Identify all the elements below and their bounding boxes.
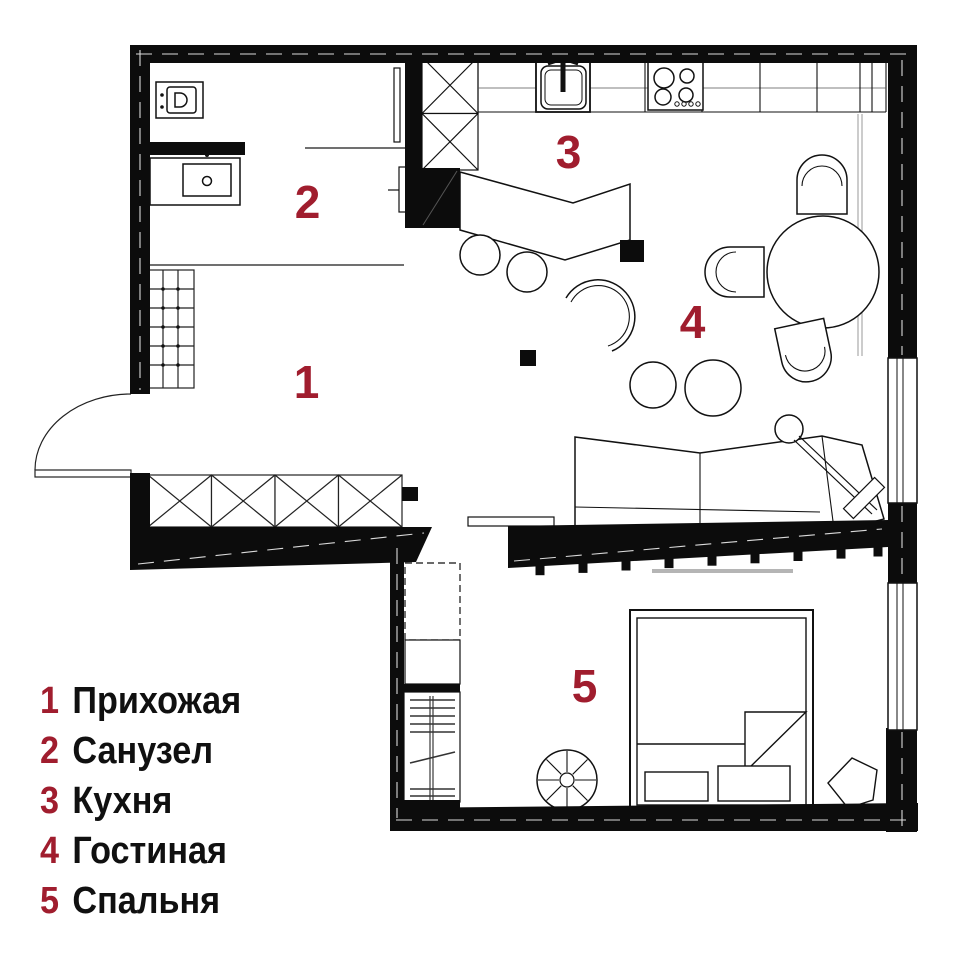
pouf xyxy=(685,360,741,416)
room-label-2: 2 xyxy=(295,176,320,228)
legend-item: 2 Санузел xyxy=(40,730,241,780)
wall-bedroom-bottom xyxy=(390,803,918,831)
legend-number: 3 xyxy=(40,780,72,823)
legend-item: 4 Гостиная xyxy=(40,830,241,880)
entrance-door xyxy=(35,394,131,477)
legend-item: 5 Спальня xyxy=(40,880,241,930)
dining-chair xyxy=(705,247,764,297)
dining-chair xyxy=(797,155,847,214)
room-label-4: 4 xyxy=(680,296,706,348)
lounge-chair xyxy=(566,280,635,351)
toilet xyxy=(156,82,203,118)
closet-separator xyxy=(402,684,460,692)
hall-wardrobe xyxy=(148,475,402,527)
legend-item: 3 Кухня xyxy=(40,780,241,830)
wall-bath-kitchen xyxy=(405,45,422,228)
sofa xyxy=(575,436,884,530)
pentagon-pouf xyxy=(828,758,877,808)
legend-number: 5 xyxy=(40,880,72,923)
legend-label: Гостиная xyxy=(72,830,227,873)
dining-chair xyxy=(775,318,836,386)
bar-stool xyxy=(507,252,547,292)
floor-plan-page: 1 2 3 4 5 1 Прихожая 2 Санузел 3 Кухня 4… xyxy=(0,0,960,960)
legend-number: 1 xyxy=(40,680,72,723)
tall-cabinet xyxy=(422,57,478,170)
tv-shelf xyxy=(468,517,554,526)
hallway-area xyxy=(35,270,402,527)
wall-left-stub xyxy=(130,473,150,530)
shoe-rack xyxy=(148,270,194,388)
pouf xyxy=(630,362,676,408)
window-bedroom xyxy=(888,583,917,730)
bedroom-area xyxy=(404,563,877,812)
legend-item: 1 Прихожая xyxy=(40,680,241,730)
bathroom-area xyxy=(150,153,406,212)
wall-right-upper xyxy=(888,57,917,358)
wall-wc-bath xyxy=(148,142,245,155)
pillow xyxy=(718,766,790,801)
mirror xyxy=(394,68,400,142)
pillow xyxy=(645,772,708,801)
wall-living-bedroom xyxy=(508,520,888,568)
room-label-1: 1 xyxy=(294,356,319,408)
room-label-5: 5 xyxy=(572,660,597,712)
closet-bottom-wall xyxy=(404,800,460,826)
sink-vanity xyxy=(150,153,240,205)
legend-label: Спальня xyxy=(72,880,220,923)
bed xyxy=(630,610,813,812)
room-label-3: 3 xyxy=(556,126,581,178)
dining-area xyxy=(705,155,879,387)
column xyxy=(520,350,536,366)
wc-area xyxy=(156,68,400,142)
ceiling-fan xyxy=(537,750,597,810)
legend-label: Прихожая xyxy=(72,680,241,723)
hanger-wardrobe xyxy=(404,692,460,802)
kitchen-sink xyxy=(536,58,590,112)
legend-number: 4 xyxy=(40,830,72,873)
closet xyxy=(405,640,460,684)
legend-label: Санузел xyxy=(72,730,213,773)
living-area xyxy=(468,360,885,530)
legend-label: Кухня xyxy=(72,780,172,823)
stove xyxy=(648,62,703,110)
legend-number: 2 xyxy=(40,730,72,773)
curtain xyxy=(652,569,793,573)
bathroom-door xyxy=(388,167,406,212)
dining-table xyxy=(767,216,879,328)
wardrobe-stub xyxy=(402,487,418,501)
bar-end-column xyxy=(620,240,644,262)
window-living xyxy=(888,358,917,503)
bar-stool xyxy=(460,235,500,275)
legend: 1 Прихожая 2 Санузел 3 Кухня 4 Гостиная … xyxy=(40,680,241,930)
closet xyxy=(405,563,460,640)
